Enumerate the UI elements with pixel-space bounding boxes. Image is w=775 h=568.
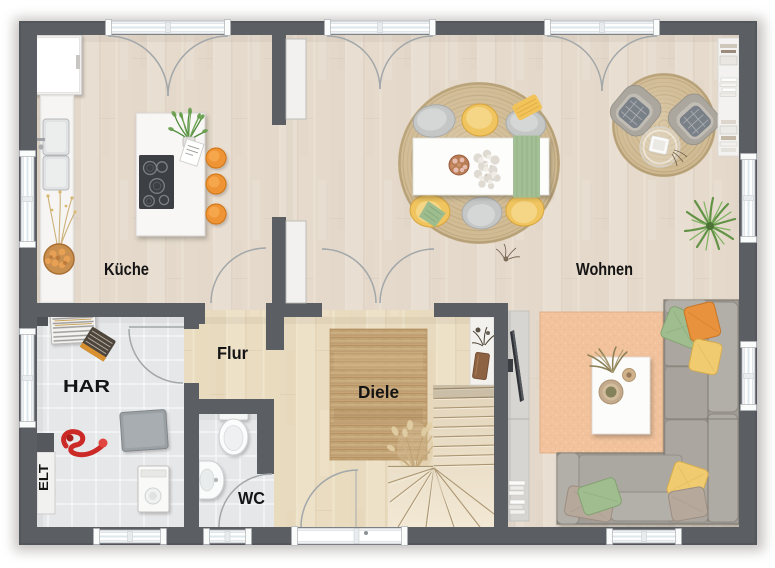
svg-text:ELT: ELT xyxy=(37,464,51,491)
svg-text:Diele: Diele xyxy=(358,382,399,402)
svg-text:Küche: Küche xyxy=(104,259,149,279)
svg-text:WC: WC xyxy=(238,488,265,508)
svg-text:Wohnen: Wohnen xyxy=(576,259,633,279)
svg-text:HAR: HAR xyxy=(63,376,110,396)
svg-text:Flur: Flur xyxy=(217,343,248,363)
